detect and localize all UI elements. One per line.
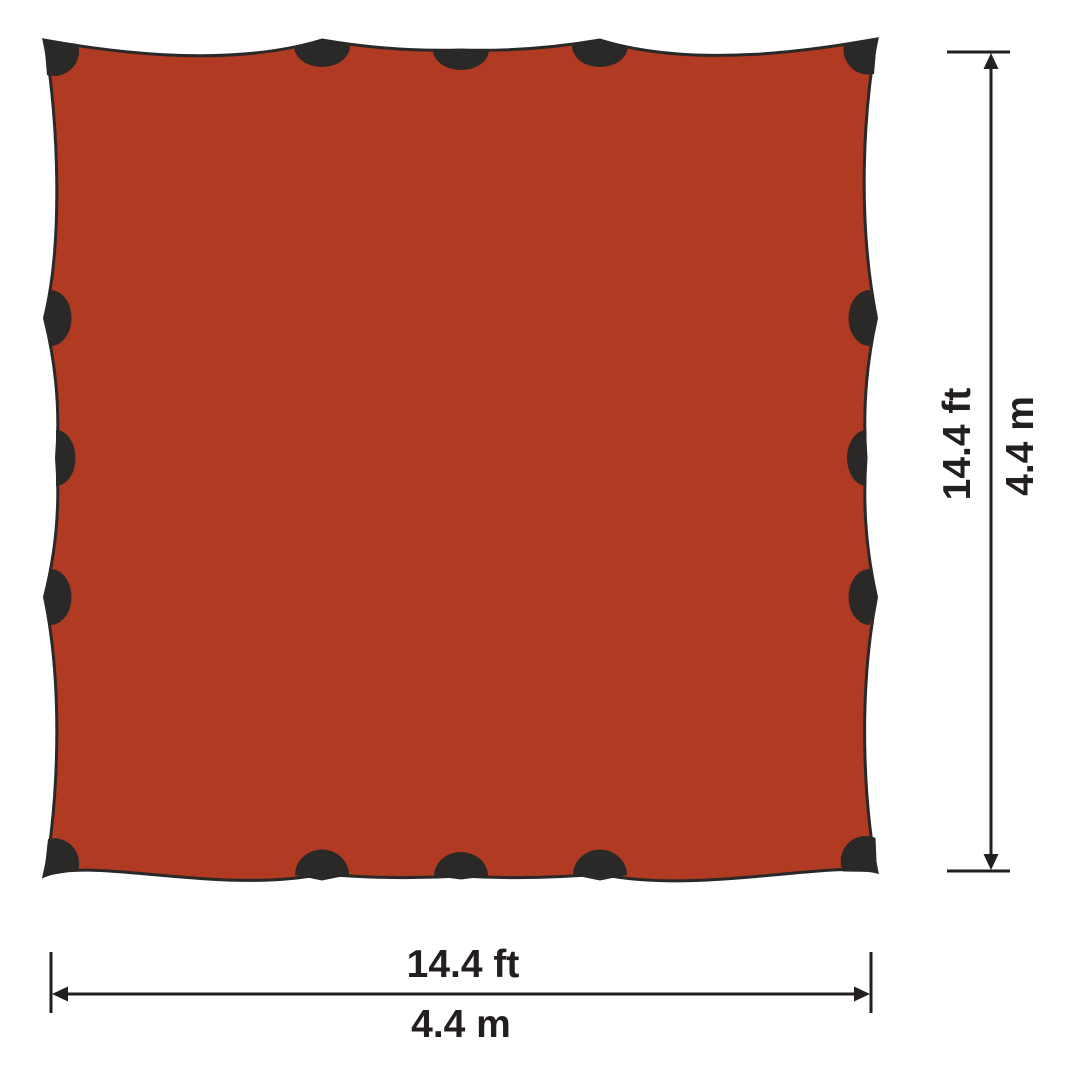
svg-text:14.4 ft: 14.4 ft	[936, 388, 979, 501]
svg-text:4.4 m: 4.4 m	[999, 396, 1042, 496]
svg-text:14.4 ft: 14.4 ft	[407, 943, 520, 986]
svg-text:4.4 m: 4.4 m	[411, 1003, 511, 1046]
